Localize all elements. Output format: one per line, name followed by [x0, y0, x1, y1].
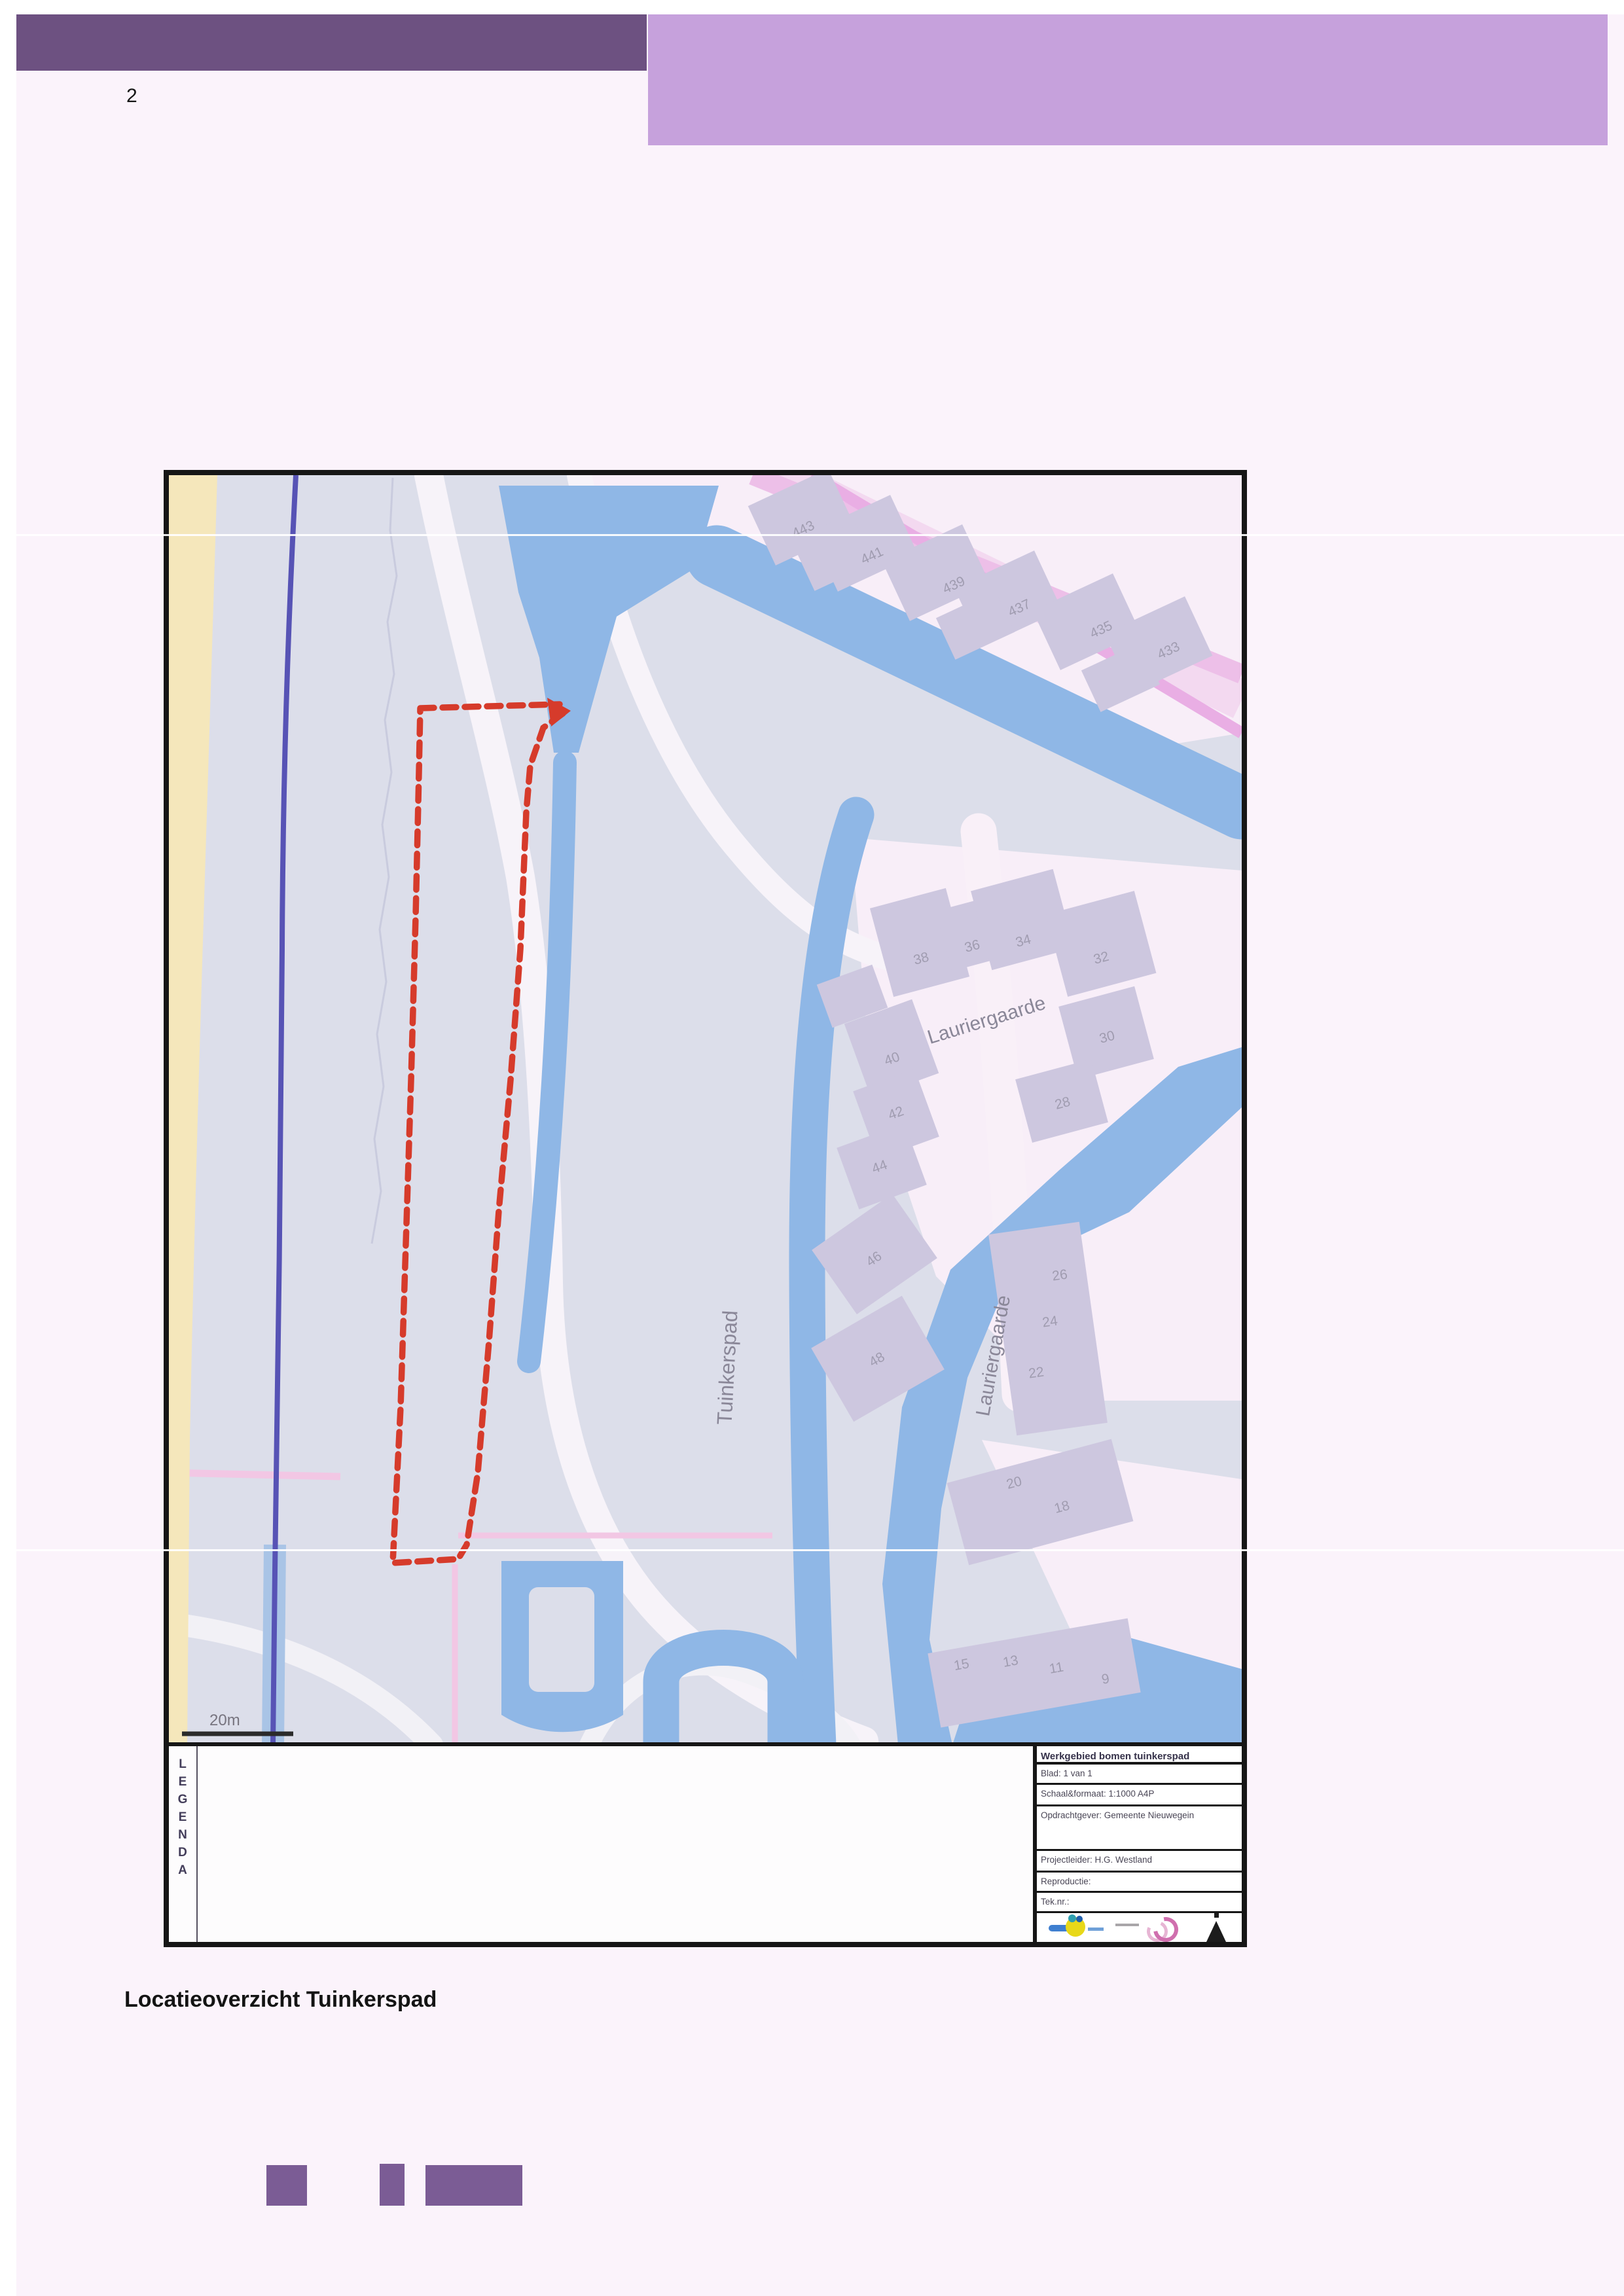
- pond-island: [529, 1587, 594, 1692]
- title-block-title: Werkgebied bomen tuinkerspad: [1037, 1746, 1242, 1765]
- house-number-label: 24: [1041, 1314, 1059, 1331]
- title-block-row: Blad: 1 van 1: [1037, 1765, 1242, 1785]
- map-figure-frame: 4434414394374354333836343230284042444648…: [164, 470, 1247, 1947]
- legend-title-letter: E: [169, 1808, 196, 1826]
- title-block-row: Tek.nr.:: [1037, 1893, 1242, 1913]
- legend-title-letter: L: [169, 1755, 196, 1773]
- location-map: 4434414394374354333836343230284042444648…: [169, 475, 1242, 1742]
- title-block-rows: Blad: 1 van 1Schaal&formaat: 1:1000 A4PO…: [1037, 1765, 1242, 1913]
- house-number-label: 26: [1051, 1267, 1068, 1284]
- surveyor-triangle-shape: [1206, 1921, 1226, 1942]
- header-accent-block: [648, 14, 1608, 145]
- house-number-label: 15: [952, 1656, 970, 1674]
- figure-caption: Locatieoverzicht Tuinkerspad: [124, 1987, 437, 2013]
- house-number-label: 22: [1028, 1365, 1045, 1382]
- title-block: Werkgebied bomen tuinkerspad Blad: 1 van…: [1033, 1746, 1242, 1942]
- legend-title-letter: G: [169, 1791, 196, 1808]
- page-margin-left: [0, 0, 16, 2296]
- stamp-line-shape: [1115, 1924, 1139, 1926]
- title-block-row: Opdrachtgever: Gemeente Nieuwegein: [1037, 1806, 1242, 1851]
- house-number-label: 13: [1001, 1653, 1019, 1670]
- scan-artifact-line-1: [0, 534, 1624, 536]
- legend-title-letter: E: [169, 1773, 196, 1791]
- gemeente-nieuwegein-logo: [1049, 1914, 1105, 1941]
- footer-mark-square: [266, 2165, 307, 2206]
- map-bottom-strip: LEGENDA Werkgebied bomen tuinkerspad Bla…: [169, 1742, 1242, 1942]
- scan-artifact-line-2: [0, 1549, 1624, 1551]
- legend-title-letter: D: [169, 1844, 196, 1861]
- logo-dot-blue: [1076, 1916, 1083, 1922]
- surveyor-square-shape: [1214, 1913, 1219, 1918]
- logo-dash-shape: [1088, 1928, 1104, 1931]
- surveyor-mark: [1204, 1913, 1230, 1942]
- legend-title-letter: A: [169, 1861, 196, 1879]
- title-block-logos: [1037, 1913, 1242, 1942]
- stamp-swirl-shape: [1148, 1912, 1183, 1947]
- footer-mark-small: [380, 2164, 405, 2206]
- house-number-label: 11: [1048, 1659, 1064, 1676]
- legend-title-letter: N: [169, 1826, 196, 1844]
- logo-dot-teal: [1068, 1914, 1076, 1922]
- page-number: 2: [126, 85, 137, 107]
- title-block-row: Schaal&formaat: 1:1000 A4P: [1037, 1785, 1242, 1806]
- scanned-report-page: 2: [0, 0, 1624, 2296]
- reproduction-stamp: [1115, 1914, 1194, 1941]
- title-block-row: Reproductie:: [1037, 1873, 1242, 1893]
- page-margin-top: [0, 0, 1624, 14]
- footer-mark-wide: [425, 2165, 522, 2206]
- legend-rail: LEGENDA: [169, 1746, 198, 1942]
- title-block-row: Projectleider: H.G. Westland: [1037, 1851, 1242, 1873]
- road-pink-left: [169, 1473, 340, 1477]
- scale-bar-label: 20m: [209, 1712, 240, 1729]
- header-accent-bar: [16, 14, 647, 71]
- legend-empty-box: [198, 1746, 1033, 1942]
